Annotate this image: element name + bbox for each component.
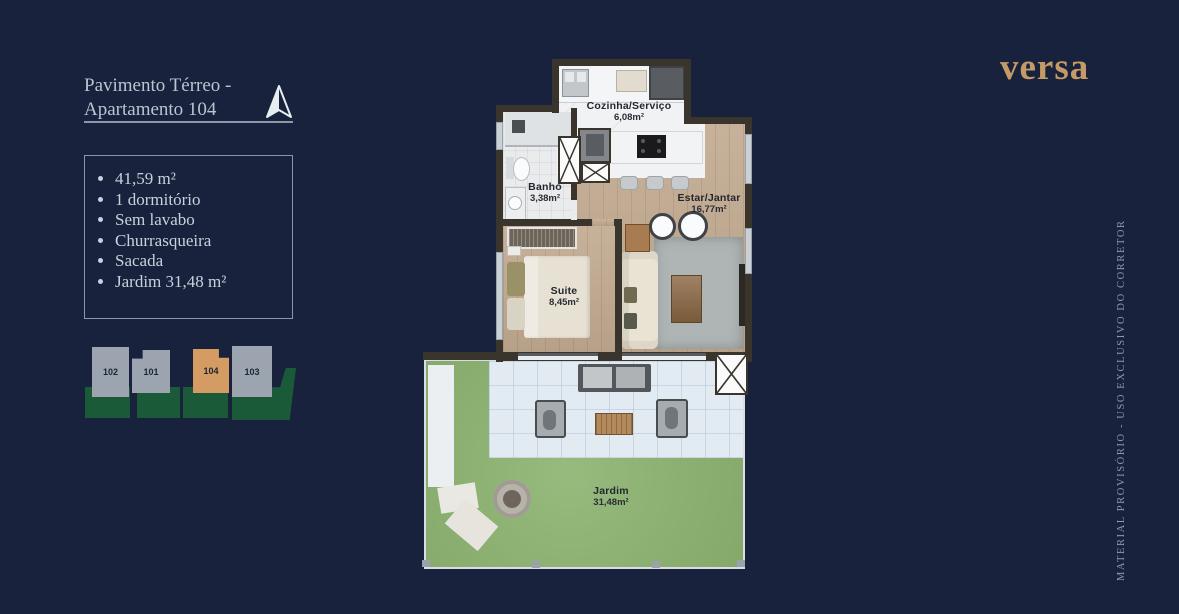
room-area: 16,77m² [677,204,740,215]
garden-armchair-cushion [665,407,678,429]
floorplan-brochure: Pavimento Térreo - Apartamento 104 41,59… [0,0,1179,614]
round-side-table [678,211,708,241]
room-name: Estar/Jantar [677,192,740,204]
feature-item: Churrasqueira [115,231,292,252]
unit-number: 104 [203,366,218,376]
room-name: Banho [528,181,562,193]
sofa-pillow [624,287,637,303]
room-area: 31,48m² [593,497,629,508]
duct-shaft-hatched [558,136,581,184]
window [745,134,752,184]
page-title-line2: Apartamento 104 [84,99,216,120]
burner [657,139,661,143]
title-divider [84,121,293,123]
garden-table [595,413,633,435]
room-area: 6,08m² [587,112,672,123]
unit-number: 101 [143,367,158,377]
window [745,228,752,274]
kitchen-stool [671,176,689,190]
suite-door-opening [592,219,614,226]
unit-number: 102 [103,367,118,377]
watermark-text: MATERIAL PROVISÓRIO - USO EXCLUSIVO DO C… [1116,293,1127,581]
suite-sliding-door [518,353,598,360]
garden-armchair-cushion [543,410,556,430]
feature-item: 41,59 m² [115,169,292,190]
window [496,252,503,340]
round-side-table [649,213,676,240]
living-sliding-door [622,353,706,360]
fence-post [422,560,430,567]
feature-item: Sacada [115,251,292,272]
features-list: 41,59 m² 1 dormitório Sem lavabo Churras… [85,169,292,292]
coffee-table [671,275,702,323]
room-area: 3,38m² [528,193,562,204]
garden-firepit-center [503,490,521,508]
shower-head [512,120,525,133]
room-name: Suite [549,285,579,297]
garden-bench-cushion [616,367,645,388]
kitchen-stool [646,176,664,190]
bathroom-door-opening [571,200,577,220]
fence-post [532,561,540,568]
wall [496,105,559,112]
fence-post [737,560,745,567]
side-table-cube [625,224,650,252]
window [496,122,503,150]
elevator-cab [586,134,604,156]
page-title-line1: Pavimento Térreo - [84,75,231,96]
feature-item: Sem lavabo [115,210,292,231]
vanity-basin [508,196,522,210]
garden-bench-cushion [583,367,612,388]
burner [641,139,645,143]
wall-suite-living [615,219,622,361]
room-label-garden: Jardim 31,48m² [593,485,629,508]
sitemap-unit-102: 102 [92,347,129,397]
kitchen-fridge [649,66,685,100]
wall-garden-stub [423,352,498,360]
suite-nightstand [507,246,521,256]
north-arrow-icon [264,84,294,120]
duct-shaft-hatched [581,162,610,183]
room-label-suite: Suite 8,45m² [549,285,579,308]
kitchen-board [616,70,647,92]
sofa-pillow [624,313,637,329]
room-area: 8,45m² [549,297,579,308]
room-label-kitchen: Cozinha/Serviço 6,08m² [587,100,672,123]
sitemap-unit-103: 103 [232,346,272,397]
feature-item: 1 dormitório [115,190,292,211]
room-name: Jardim [593,485,629,497]
wall [684,59,691,123]
duct-shaft-hatched [715,353,748,395]
bed-pillow [507,262,525,296]
unit-number: 103 [244,367,259,377]
sitemap-unit-101: 101 [132,350,170,393]
garden-path [428,365,454,487]
sink-basin [577,72,586,82]
room-name: Cozinha/Serviço [587,100,672,112]
wall [552,59,691,66]
features-box: 41,59 m² 1 dormitório Sem lavabo Churras… [84,155,293,319]
room-label-bathroom: Banho 3,38m² [528,181,562,204]
burner [657,149,661,153]
burner [641,149,645,153]
room-label-living: Estar/Jantar 16,77m² [677,192,740,215]
feature-item: Jardim 31,48 m² [115,272,292,293]
bed-pillow [507,298,525,330]
toilet [513,157,530,181]
versa-logo: versa [1000,46,1089,89]
sink-basin [565,72,574,82]
sitemap-unit-104-highlighted: 104 [193,349,229,393]
kitchen-stool [620,176,638,190]
fence-post [652,561,660,568]
wall [684,117,752,124]
